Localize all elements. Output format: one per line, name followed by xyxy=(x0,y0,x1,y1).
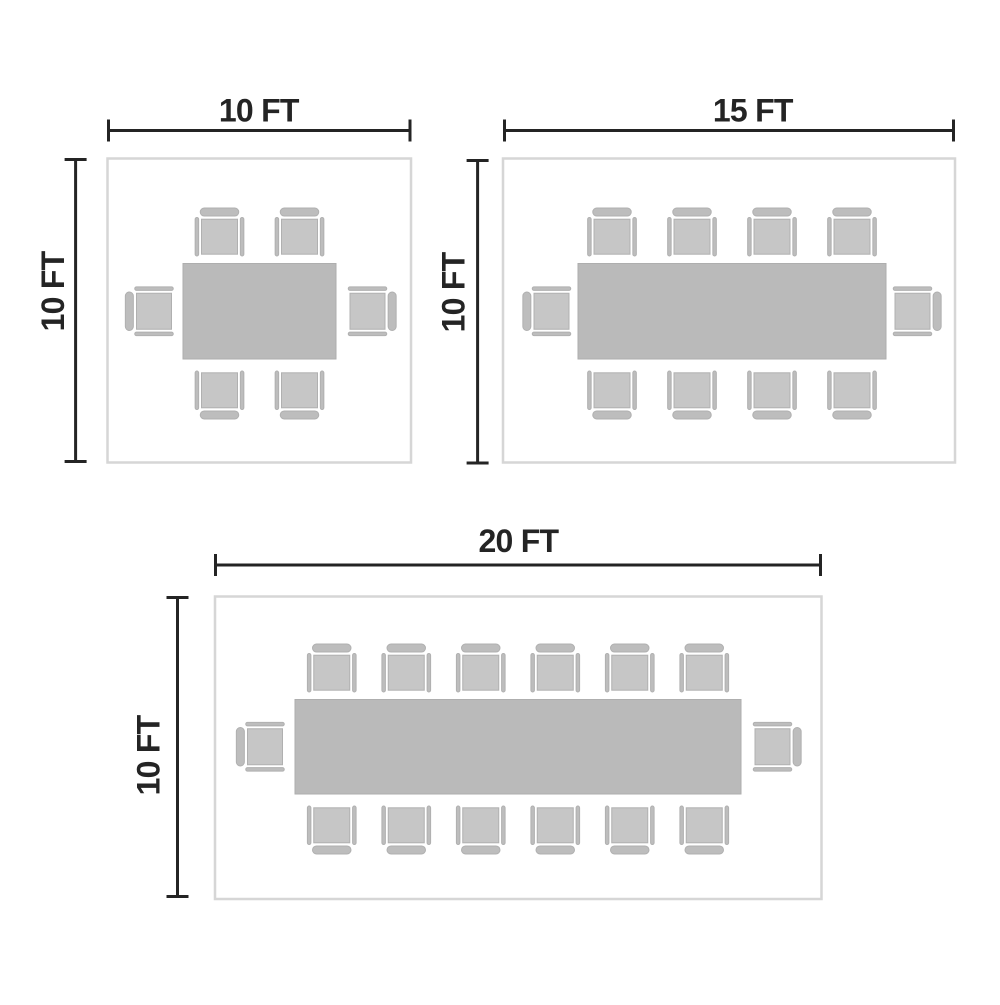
svg-text:20 FT: 20 FT xyxy=(478,523,559,559)
svg-text:10 FT: 10 FT xyxy=(219,93,300,129)
svg-text:10 FT: 10 FT xyxy=(35,250,71,331)
svg-text:10 FT: 10 FT xyxy=(436,251,472,332)
svg-text:15 FT: 15 FT xyxy=(713,93,794,129)
svg-text:10 FT: 10 FT xyxy=(131,714,167,795)
